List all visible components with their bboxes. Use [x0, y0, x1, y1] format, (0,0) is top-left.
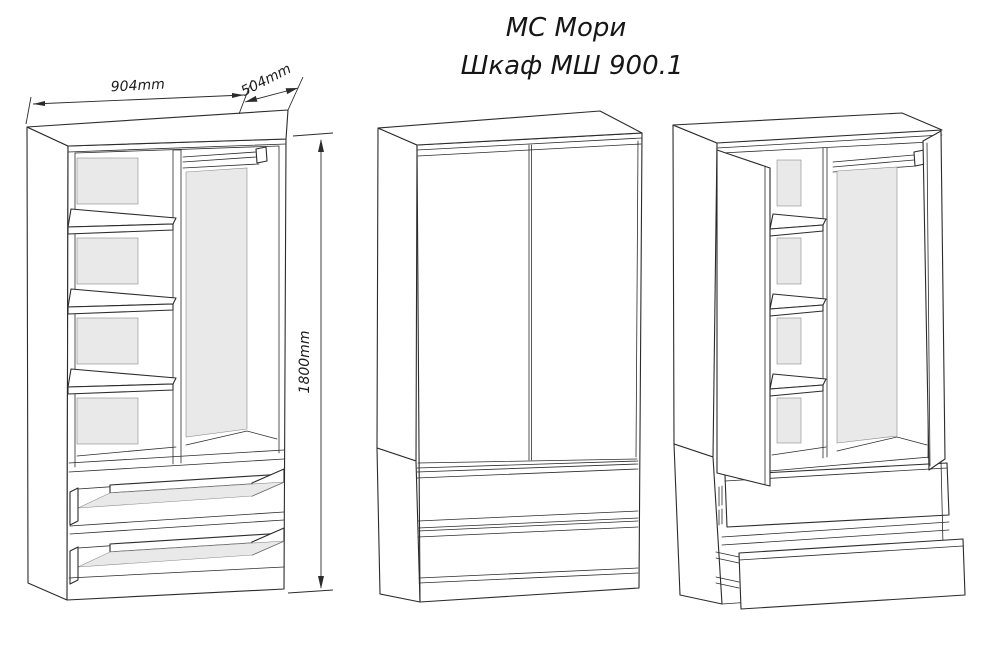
open-right-door: [923, 131, 945, 470]
depth-dimension-label: 504mm: [238, 61, 293, 100]
back-panel: [186, 168, 247, 437]
product-series-title: МС Мори: [506, 13, 627, 43]
height-dimension-label: 1800mm: [297, 331, 313, 394]
open-left-door: [717, 150, 770, 486]
back-panel: [777, 160, 801, 206]
back-panel: [777, 238, 801, 284]
height-dimension-line: 1800mm: [288, 133, 333, 593]
shelf: [770, 214, 826, 236]
top-panel: [673, 113, 942, 143]
product-model-title: Шкаф МШ 900.1: [461, 51, 684, 81]
left-side-panel: [673, 125, 717, 457]
back-panel: [777, 318, 801, 364]
left-side-panel: [377, 128, 417, 461]
left-side-panel-lower: [377, 448, 420, 602]
back-panel: [77, 398, 138, 444]
technical-drawing-page: МС Мори Шкаф МШ 900.1: [0, 0, 1000, 645]
depth-dimension-line: 504mm: [238, 61, 303, 110]
view-closed: [377, 111, 642, 602]
width-dimension-label: 904mm: [110, 77, 165, 96]
shelf: [770, 294, 826, 316]
back-panel: [77, 318, 138, 364]
back-panel: [777, 398, 801, 443]
top-panel: [27, 110, 288, 146]
wardrobe-drawing: МС Мори Шкаф МШ 900.1: [0, 0, 1000, 645]
left-side-panel-lower: [674, 444, 722, 604]
view-doors-open: [673, 113, 965, 609]
front-opening: [67, 139, 286, 600]
view-open-carcass: 904mm 504mm 1800mm: [26, 61, 333, 600]
shelf: [770, 374, 826, 396]
drawer-open: [716, 539, 965, 609]
back-panel: [837, 167, 897, 443]
back-panel: [77, 238, 138, 284]
left-side-panel: [27, 127, 68, 600]
back-panel: [77, 158, 138, 204]
